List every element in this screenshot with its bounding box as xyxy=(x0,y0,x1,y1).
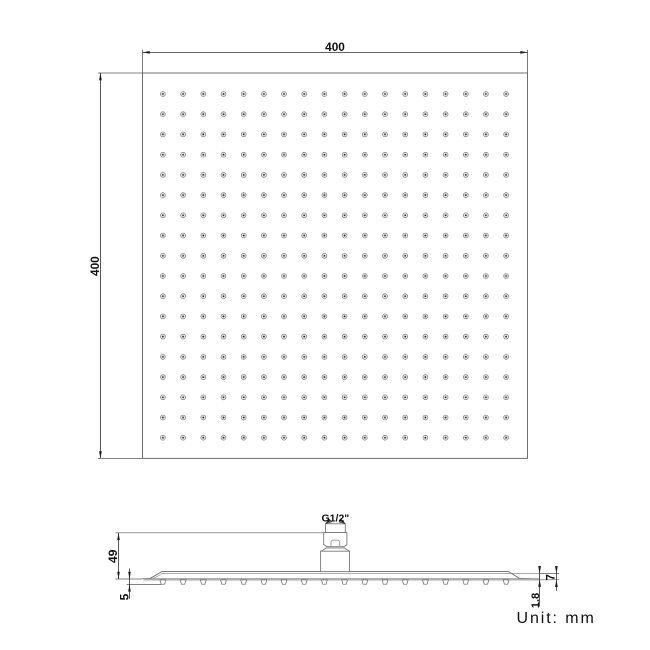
svg-text:Unit: mm: Unit: mm xyxy=(517,610,596,627)
svg-text:400: 400 xyxy=(325,40,345,54)
svg-text:5: 5 xyxy=(117,593,131,600)
svg-text:400: 400 xyxy=(88,256,102,276)
svg-text:1.8: 1.8 xyxy=(530,593,542,609)
svg-text:G1/2": G1/2" xyxy=(322,512,350,524)
svg-text:7: 7 xyxy=(546,574,558,580)
svg-text:49: 49 xyxy=(106,549,120,563)
